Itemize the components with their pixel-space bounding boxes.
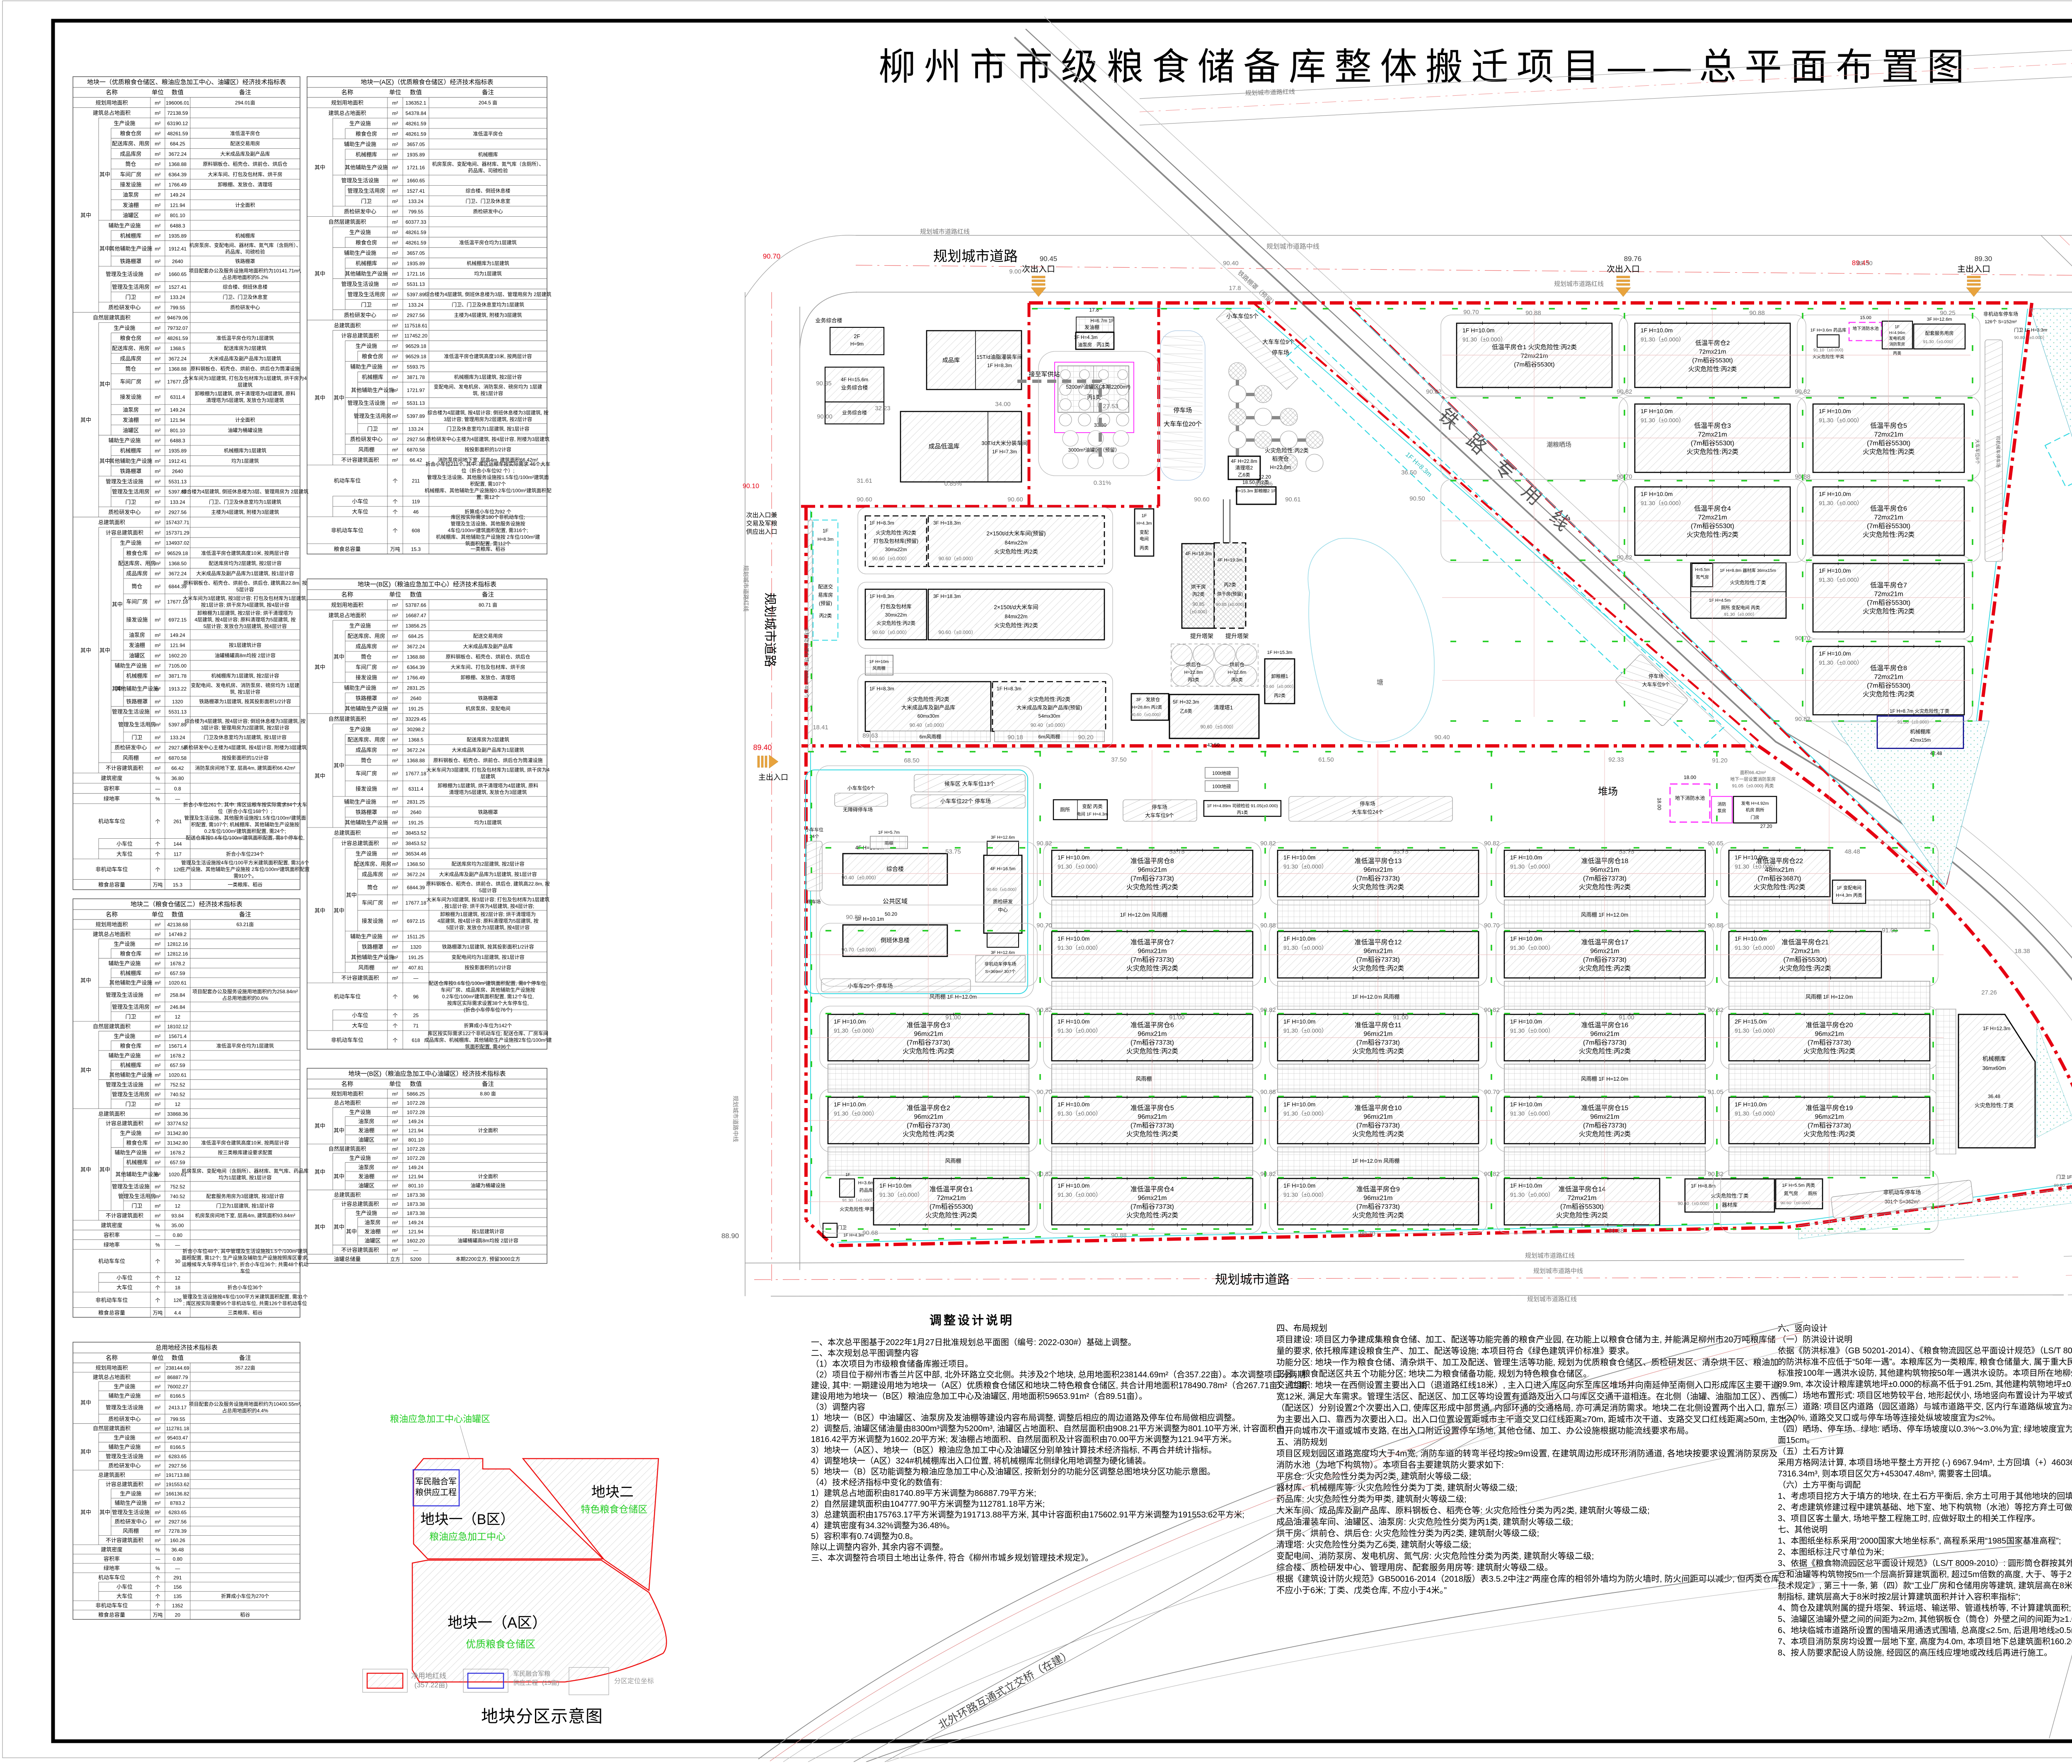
svg-text:91.30（±0.000）: 91.30（±0.000）	[1819, 659, 1863, 666]
svg-text:3）总建筑面积由175763.17平方米调整为191713.: 3）总建筑面积由175763.17平方米调整为191713.88平方米, 其中计…	[811, 1510, 1244, 1520]
svg-text:准低温平房仓: 准低温平房仓	[473, 131, 503, 137]
svg-text:91.30（±0.000）: 91.30（±0.000）	[1058, 1110, 1101, 1117]
svg-text:(357.22亩): (357.22亩)	[414, 1681, 448, 1689]
svg-text:成品库房: 成品库房	[362, 871, 383, 878]
svg-text:91.30（±0.000）: 91.30（±0.000）	[1724, 612, 1757, 617]
svg-text:其中: 其中	[315, 165, 325, 171]
svg-text:1F H=10.0m: 1F H=10.0m	[834, 1018, 866, 1025]
svg-text:停车场: 停车场	[807, 899, 821, 905]
svg-text:（五）土石方计算: （五）土石方计算	[1778, 1447, 1844, 1456]
svg-text:其中: 其中	[315, 271, 325, 277]
svg-text:, 按1层计容; 烘干房为4层建筑, 按4层计容;: , 按1层计容; 烘干房为4层建筑, 按4层计容;	[442, 903, 534, 909]
svg-text:其中: 其中	[334, 907, 344, 914]
svg-text:规划用地面积: 规划用地面积	[95, 1365, 128, 1371]
svg-text:m²: m²	[392, 665, 398, 670]
svg-text:0.80: 0.80	[173, 1232, 183, 1238]
svg-text:生产设施: 生产设施	[120, 1130, 141, 1136]
svg-text:m²: m²	[155, 1426, 161, 1432]
svg-text:卸粮棚为1层建筑, 按2层计容; 烘干清理塔为: 卸粮棚为1层建筑, 按2层计容; 烘干清理塔为	[197, 610, 293, 616]
svg-text:准低温平房仓9: 准低温平房仓9	[1356, 1186, 1400, 1193]
svg-text:火灾危险性:丙2类: 火灾危险性:丙2类	[1803, 1130, 1855, 1138]
svg-text:消防泵房间地下室, 层高4m, 建筑面积66.42m²: 消防泵房间地下室, 层高4m, 建筑面积66.42m²	[195, 765, 295, 771]
svg-text:其中: 其中	[334, 1128, 344, 1134]
svg-text:单位: 单位	[152, 1355, 164, 1362]
svg-text:191.25: 191.25	[408, 706, 424, 712]
svg-text:m²: m²	[392, 1174, 398, 1180]
svg-text:90.88: 90.88	[1608, 1227, 1624, 1234]
svg-text:m²: m²	[155, 499, 161, 505]
svg-text:项目配套办公及服务设施用地面积约为10141.71m²,: 项目配套办公及服务设施用地面积约为10141.71m²,	[189, 268, 301, 274]
svg-text:大米车间、打包及包材库、烘干房: 大米车间、打包及包材库、烘干房	[208, 171, 282, 177]
svg-text:m²: m²	[155, 1092, 161, 1098]
svg-text:1F H=10.0m: 1F H=10.0m	[1510, 935, 1542, 942]
svg-text:铁 路 专 用 线: 铁 路 专 用 线	[1435, 404, 1579, 539]
svg-text:91.30（±0.000）: 91.30（±0.000）	[1641, 336, 1685, 343]
svg-text:大米车间为3层建筑, 按3层计容; 打包及包材库为1层建筑,: 大米车间为3层建筑, 按3层计容; 打包及包材库为1层建筑,	[183, 595, 307, 601]
svg-text:90.82: 90.82	[1795, 388, 1811, 395]
svg-text:2413.17: 2413.17	[169, 1405, 187, 1411]
svg-text:1F H=10.0m: 1F H=10.0m	[834, 1101, 866, 1108]
svg-text:1602.20: 1602.20	[407, 1238, 425, 1244]
svg-text:18.38: 18.38	[2014, 948, 2030, 955]
svg-text:计容总建筑面积: 计容总建筑面积	[106, 1120, 143, 1127]
svg-text:辅助生产设施: 辅助生产设施	[344, 250, 376, 256]
svg-text:单位: 单位	[389, 591, 401, 598]
svg-text:粮食总容量: 粮食总容量	[98, 1309, 125, 1316]
svg-text:261: 261	[173, 819, 182, 825]
svg-text:H=4.3m 丙类: H=4.3m 丙类	[1836, 892, 1862, 898]
svg-text:91.30（±0.000）: 91.30（±0.000）	[1510, 1110, 1554, 1117]
svg-text:m²: m²	[392, 292, 398, 298]
svg-text:90.20: 90.20	[1078, 734, 1094, 741]
svg-text:4）建筑密度有34.32%调整为36.48%。: 4）建筑密度有34.32%调整为36.48%。	[811, 1521, 955, 1530]
svg-text:m²: m²	[155, 686, 161, 692]
svg-text:原料钢板仓、稻壳仓、烘前仓、烘后仓为筒灌设施: 原料钢板仓、稻壳仓、烘前仓、烘后仓为筒灌设施	[190, 365, 300, 372]
svg-text:m²: m²	[155, 663, 161, 669]
svg-text:90.70: 90.70	[1484, 1089, 1500, 1096]
svg-text:1F H=8.7m 火灾危险性:丁类: 1F H=8.7m 火灾危险性:丁类	[1890, 708, 1950, 714]
svg-text:火灾危险性:丙2类: 火灾危险性:丙2类	[1803, 1048, 1855, 1055]
svg-text:4）调整地块一（A区）324#机械棚库出入口位置, 将机械棚: 4）调整地块一（A区）324#机械棚库出入口位置, 将机械棚库北侧绿化用地调整为…	[811, 1456, 1151, 1466]
svg-text:91.30（±0.000）: 91.30（±0.000）	[1510, 1027, 1554, 1034]
svg-text:油泵房: 油泵房	[358, 1118, 374, 1125]
svg-text:89.30: 89.30	[1975, 255, 1992, 263]
svg-text:生产设施: 生产设施	[120, 1491, 141, 1497]
svg-text:低温平房仓4: 低温平房仓4	[1694, 505, 1731, 513]
svg-text:库区按实际需求122个非机动车位; 配送仓库、厂房车间: 库区按实际需求122个非机动车位; 配送仓库、厂房车间	[428, 1030, 548, 1036]
svg-text:(7m稻谷5530t): (7m稻谷5530t)	[1514, 361, 1554, 368]
svg-text:m²: m²	[155, 951, 161, 957]
svg-text:绿地率: 绿地率	[104, 1241, 120, 1248]
svg-text:91.30（±0.000）: 91.30（±0.000）	[834, 1110, 878, 1117]
svg-text:1F: 1F	[845, 1173, 850, 1177]
svg-text:计容总建筑面积: 计容总建筑面积	[341, 840, 379, 847]
svg-text:88.90: 88.90	[721, 1232, 739, 1240]
svg-text:m²: m²	[392, 219, 398, 225]
svg-text:31.61: 31.61	[857, 477, 872, 484]
svg-text:低温平房仓5: 低温平房仓5	[1870, 422, 1907, 430]
svg-text:407.81: 407.81	[408, 965, 424, 971]
svg-text:H=28.8m 丙2类: H=28.8m 丙2类	[1132, 704, 1162, 710]
svg-text:100t地磅: 100t地磅	[1212, 784, 1231, 789]
svg-text:m²: m²	[155, 192, 161, 198]
svg-text:m²: m²	[155, 1472, 161, 1478]
svg-text:90.82: 90.82	[1036, 1171, 1052, 1178]
svg-text:个: 个	[392, 509, 397, 515]
svg-text:m²: m²	[392, 841, 398, 847]
svg-text:6870.58: 6870.58	[407, 447, 425, 453]
svg-text:2×150t/d大米车间: 2×150t/d大米车间	[994, 604, 1038, 610]
svg-text:（一）防洪设计说明: （一）防洪设计说明	[1778, 1335, 1852, 1344]
svg-text:质检研发中心主楼为4层建筑, 按4层计容, 附楼为3层建筑: 质检研发中心主楼为4层建筑, 按4层计容, 附楼为3层建筑	[184, 744, 307, 750]
svg-text:96mx21m: 96mx21m	[1138, 1113, 1167, 1120]
svg-text:m²: m²	[155, 632, 161, 638]
svg-text:个: 个	[155, 1594, 160, 1599]
svg-text:消防: 消防	[1718, 801, 1726, 807]
svg-text:H=4.3m: H=4.3m	[1136, 521, 1152, 526]
svg-text:1F H=8.3m: 1F H=8.3m	[869, 593, 894, 599]
svg-text:1527.41: 1527.41	[169, 284, 187, 290]
svg-text:136352.1: 136352.1	[405, 100, 426, 106]
svg-text:（1）本次项目为市级粮食储备库搬迁项目。: （1）本次项目为市级粮食储备库搬迁项目。	[811, 1359, 973, 1369]
svg-text:配送库房为2层建筑: 配送库房为2层建筑	[467, 736, 509, 743]
svg-text:91.30（±0.000）: 91.30（±0.000）	[1283, 863, 1327, 870]
svg-text:配套服务用房为3层建筑, 按3层计容: 配套服务用房为3层建筑, 按3层计容	[206, 1193, 284, 1199]
svg-text:1F H=10.0m: 1F H=10.0m	[1819, 491, 1851, 497]
svg-text:火灾危险性:丙2类: 火灾危险性:丙2类	[1352, 965, 1404, 972]
svg-text:752.52: 752.52	[170, 1184, 185, 1190]
svg-text:m²: m²	[392, 141, 398, 147]
svg-text:%: %	[155, 776, 160, 782]
svg-text:质检研发: 质检研发	[993, 898, 1013, 905]
svg-text:91.00: 91.00	[945, 1014, 961, 1021]
svg-text:管理及生活用房: 管理及生活用房	[118, 1193, 156, 1199]
svg-text:5、油罐区油罐外壁之间的间距为≥2m, 其他钢板仓（筒仓）外: 5、油罐区油罐外壁之间的间距为≥2m, 其他钢板仓（筒仓）外壁之间的间距为≥1.…	[1778, 1614, 2072, 1624]
svg-text:潮粮晒场: 潮粮晒场	[1547, 441, 1571, 448]
svg-text:(7m稻谷5530t): (7m稻谷5530t)	[1692, 357, 1733, 364]
svg-text:大米车间为3层建筑, 按3层计容; 打包及包材库为1层建筑: 大米车间为3层建筑, 按3层计容; 打包及包材库为1层建筑	[426, 896, 549, 903]
svg-text:(7m稻谷5530t): (7m稻谷5530t)	[1691, 523, 1734, 530]
svg-text:1935.89: 1935.89	[169, 233, 187, 239]
svg-text:(7m稻谷5530t): (7m稻谷5530t)	[1867, 440, 1910, 447]
svg-text:1912.41: 1912.41	[169, 458, 187, 464]
svg-text:—: —	[155, 786, 160, 791]
svg-text:291: 291	[173, 1575, 182, 1581]
svg-text:96mx21m: 96mx21m	[914, 1031, 943, 1038]
svg-text:均为1层建筑: 均为1层建筑	[474, 270, 502, 276]
svg-text:丙类: 丙类	[1140, 545, 1149, 551]
svg-text:m²: m²	[392, 1229, 398, 1234]
svg-text:90.85 (±0.000): 90.85 (±0.000)	[1216, 602, 1244, 607]
svg-text:91.30（±0.000）: 91.30（±0.000）	[1510, 944, 1554, 951]
svg-text:m²: m²	[392, 771, 398, 777]
svg-text:34.00: 34.00	[995, 401, 1011, 408]
svg-text:不计容建筑面积: 不计容建筑面积	[341, 457, 379, 463]
svg-text:1F H=10.0m: 1F H=10.0m	[1735, 935, 1767, 942]
svg-text:8.80 亩: 8.80 亩	[480, 1091, 496, 1097]
svg-text:次出入口兼: 次出入口兼	[746, 512, 777, 519]
svg-text:90.82: 90.82	[1260, 1007, 1276, 1014]
svg-text:筒仓: 筒仓	[361, 654, 372, 660]
svg-text:m²: m²	[155, 1519, 161, 1525]
svg-text:准低温平房仓1: 准低温平房仓1	[929, 1186, 973, 1193]
svg-text:火灾危险性:丙2类: 火灾危险性:丙2类	[994, 548, 1038, 555]
svg-text:4、筒仓及建筑附属的提升塔架、转运塔、输送带、管道栈桥等,: 4、筒仓及建筑附属的提升塔架、转运塔、输送带、管道栈桥等, 不计算建筑面积;	[1778, 1603, 2071, 1613]
svg-text:1F: 1F	[823, 528, 828, 534]
svg-text:地下消防水池: 地下消防水池	[1853, 326, 1879, 331]
svg-text:m²: m²	[392, 675, 398, 681]
svg-text:粮油应急加工中心油罐区: 粮油应急加工中心油罐区	[390, 1414, 490, 1424]
svg-text:司机候车停车场: 司机候车停车场	[1995, 436, 2001, 468]
svg-text:8、按人防要求配设人防设施, 经园区的高压线应埋地或改线后再: 8、按人防要求配设人防设施, 经园区的高压线应埋地或改线后再进行施工。	[1778, 1648, 2052, 1658]
svg-text:车间厂房: 车间厂房	[120, 171, 141, 177]
svg-text:2、考虑建筑修建过程中建筑基础、地下室、地下构筑物（水池）等: 2、考虑建筑修建过程中建筑基础、地下室、地下构筑物（水池）等挖方弃土可做填方使用…	[1778, 1503, 2072, 1512]
svg-text:1F H=8.3m: 1F H=8.3m	[869, 520, 894, 526]
svg-text:准低温平房仓12: 准低温平房仓12	[1355, 939, 1402, 946]
svg-text:54378.84: 54378.84	[405, 111, 426, 116]
svg-text:丙2类: 丙2类	[1224, 582, 1236, 588]
svg-text:90.35: 90.35	[816, 380, 832, 387]
svg-text:m²: m²	[155, 1014, 161, 1020]
svg-text:管理及生活设施: 管理及生活设施	[341, 281, 379, 287]
svg-text:90.60（±0.000）: 90.60（±0.000）	[939, 556, 976, 561]
svg-text:90.70: 90.70	[1036, 922, 1052, 929]
svg-text:清理塔1: 清理塔1	[1214, 704, 1233, 711]
svg-text:1072.28: 1072.28	[407, 1146, 425, 1152]
svg-text:粮食仓库: 粮食仓库	[120, 1043, 141, 1049]
svg-text:7105.00: 7105.00	[169, 663, 187, 669]
svg-text:其他辅助生产设施: 其他辅助生产设施	[345, 706, 388, 712]
svg-text:1F H=10.0m: 1F H=10.0m	[1058, 935, 1089, 942]
svg-text:生产设施: 生产设施	[349, 1109, 371, 1115]
svg-text:成品库房: 成品库房	[356, 747, 377, 753]
svg-text:m²: m²	[392, 250, 398, 256]
svg-text:m²: m²	[155, 617, 161, 623]
svg-text:96mx21m: 96mx21m	[1363, 866, 1392, 874]
svg-text:m²: m²	[392, 437, 398, 443]
svg-text:m²: m²	[155, 325, 161, 331]
svg-text:m²: m²	[155, 366, 161, 372]
svg-text:准低温平房仓13: 准低温平房仓13	[1355, 857, 1402, 865]
svg-text:规划用地面积: 规划用地面积	[95, 922, 128, 928]
svg-text:m²: m²	[155, 599, 161, 605]
svg-text:烘干房、烘前仓、烘后仓: 火灾危险性分类为丙2类, 建筑耐火: 烘干房、烘前仓、烘后仓: 火灾危险性分类为丙2类, 建筑耐火等级二级;	[1276, 1529, 1539, 1538]
svg-text:90.25: 90.25	[1940, 310, 1956, 317]
svg-text:36.48: 36.48	[1988, 1094, 2000, 1099]
svg-text:(7m稻谷7373t): (7m稻谷7373t)	[1808, 1122, 1851, 1129]
svg-text:90.88: 90.88	[1260, 1089, 1276, 1096]
svg-text:m²: m²	[155, 1121, 161, 1127]
svg-text:96mx21m: 96mx21m	[1815, 1031, 1844, 1038]
svg-text:变配电间、发电机房、消防泵房、磅房均为 1层建: 变配电间、发电机房、消防泵房、磅房均为 1层建	[433, 383, 542, 390]
svg-text:m²: m²	[155, 653, 161, 658]
svg-text:机动车车位: 机动车车位	[98, 1575, 125, 1581]
svg-text:电间: 电间	[1140, 536, 1149, 542]
svg-text:药品库: 药品库	[859, 1188, 873, 1193]
svg-text:m²: m²	[392, 1238, 398, 1244]
svg-text:接发设施: 接发设施	[120, 181, 141, 188]
svg-text:粮食仓库: 粮食仓库	[126, 550, 148, 556]
svg-text:(7m稻谷7373t): (7m稻谷7373t)	[1130, 1203, 1174, 1210]
svg-text:1F H=10.0m: 1F H=10.0m	[879, 1182, 911, 1189]
svg-text:（4）技术经济指标中变化的数值有:: （4）技术经济指标中变化的数值有:	[811, 1478, 942, 1487]
svg-text:96529.18: 96529.18	[405, 344, 426, 349]
svg-text:主楼为4层建筑, 附楼为3层建筑: 主楼为4层建筑, 附楼为3层建筑	[454, 312, 522, 318]
svg-text:1935.89: 1935.89	[169, 448, 187, 454]
svg-text:铁路棚罩: 铁路棚罩	[356, 809, 377, 815]
svg-text:项目配套办公及服务设施用地面积约为10400.55m²,: 项目配套办公及服务设施用地面积约为10400.55m²,	[189, 1401, 301, 1407]
svg-text:m²: m²	[155, 1101, 161, 1107]
svg-text:m²: m²	[392, 748, 398, 753]
svg-text:m²: m²	[155, 438, 161, 444]
svg-text:运粮候车大车停车位18个, 折合小车位36个; 共需48个机: 运粮候车大车停车位18个, 折合小车位36个; 共需48个机动	[182, 1261, 308, 1268]
svg-text:油罐桶罐高8m均按 2层计容: 油罐桶罐高8m均按 2层计容	[457, 1237, 518, 1244]
svg-text:; 库区按实际需要95个非机动车位, 共需126个非机动车位: ; 库区按实际需要95个非机动车位, 共需126个非机动车位	[183, 1300, 307, 1306]
svg-text:H=22.8m: H=22.8m	[1270, 465, 1291, 470]
svg-text:89.40: 89.40	[753, 743, 772, 752]
svg-text:m²: m²	[155, 162, 161, 167]
svg-text:规划用地面积: 规划用地面积	[95, 99, 128, 106]
svg-text:规划城市道路: 规划城市道路	[933, 249, 1018, 264]
svg-text:机械棚库: 机械棚库	[120, 233, 141, 239]
svg-text:筑面积配置, 需496个: 筑面积配置, 需496个	[465, 1043, 511, 1050]
svg-text:火灾危险性:丙2类: 火灾危险性:丙2类	[1126, 883, 1178, 891]
svg-text:易库房: 易库房	[818, 592, 833, 598]
svg-text:1678.2: 1678.2	[170, 961, 185, 966]
svg-text:90.40（±0.000）: 90.40（±0.000）	[1031, 722, 1068, 728]
svg-text:火灾危险性:丙2类: 火灾危险性:丙2类	[1028, 696, 1070, 702]
svg-text:火灾危险性:丙2类: 火灾危险性:丙2类	[1863, 691, 1915, 698]
svg-text:1F H=8.8m 器材库 36mx15m: 1F H=8.8m 器材库 36mx15m	[1720, 568, 1776, 573]
svg-text:计全面积: 计全面积	[478, 1127, 498, 1133]
svg-text:m²: m²	[155, 110, 161, 116]
svg-text:m²: m²	[392, 727, 398, 733]
svg-text:m²: m²	[155, 1213, 161, 1219]
svg-text:名称: 名称	[106, 89, 118, 96]
svg-text:大车位: 大车位	[116, 851, 133, 857]
svg-text:25: 25	[413, 1013, 419, 1019]
svg-text:60mx30m: 60mx30m	[917, 713, 939, 719]
svg-text:准低温平房仓2: 准低温平房仓2	[907, 1104, 950, 1112]
svg-text:(7m稻谷7373t): (7m稻谷7373t)	[1583, 1122, 1627, 1129]
svg-text:133.24: 133.24	[170, 499, 185, 505]
svg-text:211: 211	[412, 478, 420, 484]
svg-text:63190.12: 63190.12	[167, 121, 188, 126]
svg-text:成品库房: 成品库房	[126, 571, 148, 577]
svg-text:m²: m²	[155, 745, 161, 751]
svg-text:6311.4: 6311.4	[170, 394, 185, 400]
svg-text:数值: 数值	[410, 591, 422, 598]
svg-text:m²: m²	[392, 344, 398, 349]
svg-text:91.30（±0.000）: 91.30（±0.000）	[1923, 339, 1956, 344]
svg-text:112781.18: 112781.18	[166, 1426, 189, 1432]
svg-text:接至军供站: 接至军供站	[1029, 371, 1060, 378]
svg-text:166136.82: 166136.82	[166, 1491, 189, 1497]
svg-text:(7m稻谷7373t): (7m稻谷7373t)	[907, 1122, 950, 1129]
svg-text:33774.52: 33774.52	[167, 1121, 188, 1127]
svg-text:91.30（±0.000）: 91.30（±0.000）	[1283, 1110, 1327, 1117]
svg-text:综合楼为4层建筑, 倒班休息楼为3层、管理用房为 2层建筑: 综合楼为4层建筑, 倒班休息楼为3层、管理用房为 2层建筑	[424, 291, 551, 297]
svg-text:卸粮棚为1层建筑, 烘干清理塔为4层建筑, 原料: 卸粮棚为1层建筑, 烘干清理塔为4层建筑, 原料	[438, 782, 538, 789]
svg-text:业务综合楼: 业务综合楼	[842, 409, 867, 416]
svg-text:粮食总容量: 粮食总容量	[98, 882, 125, 888]
svg-text:大米成品库及副产品库: 大米成品库及副产品库	[901, 704, 955, 711]
svg-text:大车车位8个: 大车车位8个	[1975, 439, 1980, 464]
svg-text:其中: 其中	[99, 381, 110, 387]
svg-text:油罐区: 油罐区	[129, 652, 145, 658]
svg-text:机械棚库: 机械棚库	[478, 151, 498, 157]
svg-text:1816.42平方米调整为1602.20平方米; 发油棚占地: 1816.42平方米调整为1602.20平方米; 发油棚占地面积、自然层面积及计…	[811, 1435, 1237, 1444]
svg-text:乙6类: 乙6类	[1180, 708, 1192, 714]
svg-text:其中: 其中	[315, 907, 325, 914]
svg-text:生产设施: 生产设施	[349, 229, 371, 235]
svg-text:90.82: 90.82	[1708, 1171, 1723, 1178]
svg-text:机械棚库为1层建筑: 机械棚库为1层建筑	[224, 448, 266, 454]
svg-text:m²: m²	[155, 584, 161, 590]
svg-text:发油棚: 发油棚	[123, 202, 139, 208]
svg-text:地块一(A区)（优质粮食仓储区）经济技术指标表: 地块一(A区)（优质粮食仓储区）经济技术指标表	[361, 79, 494, 86]
svg-text:4层建筑, 按4层计容; 原料清理塔为5层建筑, 按: 4层建筑, 按4层计容; 原料清理塔为5层建筑, 按	[437, 918, 538, 924]
svg-text:非机动车停车场 S=486m² 405个: 非机动车停车场 S=486m² 405个	[804, 627, 810, 699]
svg-text:90.82: 90.82	[1484, 840, 1500, 847]
svg-text:1F H=10m: 1F H=10m	[869, 660, 889, 664]
svg-text:m²: m²	[392, 900, 398, 906]
svg-text:清理塔为5层建筑, 发放仓为3层建筑: 清理塔为5层建筑, 发放仓为3层建筑	[206, 397, 284, 403]
svg-text:90.82: 90.82	[1036, 840, 1052, 847]
svg-text:打包及包材库(预留): 打包及包材库(预留)	[874, 538, 918, 544]
svg-text:(7m稻谷5530t): (7m稻谷5530t)	[1867, 682, 1910, 690]
svg-text:53.75: 53.75	[1393, 848, 1409, 855]
svg-text:准低温平房仓建筑高度10米, 按两层计容: 准低温平房仓建筑高度10米, 按两层计容	[201, 550, 289, 556]
svg-text:柳州市市级粮食储备库整体搬迁项目——总平面布置图: 柳州市市级粮食储备库整体搬迁项目——总平面布置图	[879, 46, 1973, 88]
svg-text:m²: m²	[392, 1164, 398, 1170]
svg-text:6972.15: 6972.15	[407, 918, 425, 924]
svg-text:规划城市道路红线: 规划城市道路红线	[1554, 281, 1604, 288]
svg-text:丙2类: 丙2类	[1274, 692, 1285, 698]
svg-text:96mx21m: 96mx21m	[1363, 1195, 1392, 1202]
svg-text:0.2车位/100m²建筑面积配置, 需24个;: 0.2车位/100m²建筑面积配置, 需24个;	[204, 828, 286, 834]
svg-text:1678.2: 1678.2	[170, 1053, 185, 1059]
svg-text:折合小车位48个, 其中管理及生活设施按1.5个/100m²: 折合小车位48个, 其中管理及生活设施按1.5个/100m²建筑	[182, 1248, 307, 1254]
svg-text:风雨棚: 风雨棚	[123, 1528, 139, 1534]
svg-text:管理及生活用房: 管理及生活用房	[353, 413, 391, 419]
svg-text:泵房: 泵房	[1718, 808, 1726, 813]
svg-text:其中: 其中	[315, 1123, 325, 1129]
svg-text:辅助生产设施: 辅助生产设施	[108, 438, 140, 444]
svg-text:门卫: 门卫	[361, 198, 372, 204]
svg-text:火灾危险性:丁类: 火灾危险性:丁类	[1730, 579, 1766, 586]
svg-text:6364.39: 6364.39	[407, 665, 425, 670]
svg-text:90.45: 90.45	[1040, 255, 1058, 263]
svg-text:m²: m²	[392, 623, 398, 629]
svg-text:不计容建筑面积: 不计容建筑面积	[106, 1212, 143, 1219]
svg-text:生产设施: 生产设施	[356, 851, 377, 857]
svg-text:机动车车位: 机动车车位	[98, 818, 125, 825]
svg-text:机械棚库为1层建筑, 按2层计容: 机械棚库为1层建筑, 按2层计容	[454, 374, 522, 380]
svg-text:6311.4: 6311.4	[409, 786, 424, 792]
svg-text:管理及生活设施: 管理及生活设施	[347, 400, 385, 406]
svg-text:辅助生产设施: 辅助生产设施	[350, 934, 382, 940]
svg-text:m²: m²	[155, 131, 161, 137]
svg-text:计容总建筑面积: 计容总建筑面积	[106, 1481, 143, 1488]
svg-text:1873.38: 1873.38	[407, 1201, 425, 1207]
svg-text:2927.56: 2927.56	[169, 1463, 187, 1469]
svg-text:53787.66: 53787.66	[405, 603, 426, 608]
svg-text:计全面积: 计全面积	[235, 202, 255, 208]
svg-text:149.24: 149.24	[408, 1220, 424, 1225]
svg-text:135: 135	[173, 1594, 182, 1599]
svg-text:1368.50: 1368.50	[169, 561, 187, 566]
